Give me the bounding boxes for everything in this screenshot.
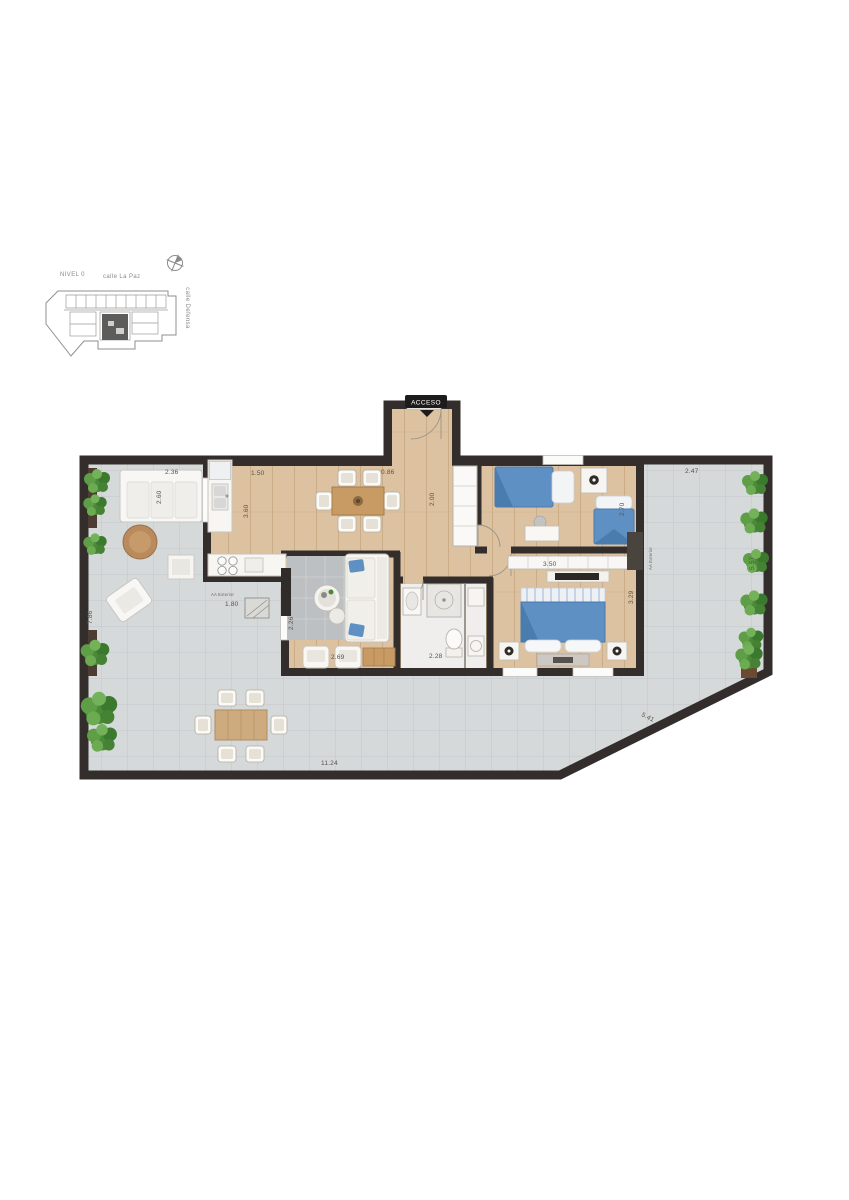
ac-unit-left xyxy=(245,598,269,618)
street-right-label: calle Defensa xyxy=(184,287,190,329)
master-window-left xyxy=(503,668,537,677)
oven xyxy=(245,558,263,572)
level-label: NIVEL 0 xyxy=(60,272,85,278)
site-highlight-unit xyxy=(102,314,128,340)
tv-console xyxy=(281,568,291,616)
site-map: NIVEL 0 calle La Paz calle Defensa xyxy=(40,245,195,365)
bath-sink xyxy=(403,588,421,615)
dim-living-width: 2.69 xyxy=(331,654,345,661)
outdoor-side-table xyxy=(168,555,194,579)
fridge xyxy=(210,462,231,480)
outdoor-round-table xyxy=(123,525,157,559)
dim-living-depth: 2.26 xyxy=(288,616,295,630)
dim-hall-depth: 2.00 xyxy=(429,492,436,506)
dim-master-depth: 3.29 xyxy=(628,590,635,604)
site-map-drawing: NIVEL 0 calle La Paz calle Defensa xyxy=(40,245,195,365)
master-window-right xyxy=(573,668,613,677)
ac-unit-right xyxy=(627,532,643,570)
hall-closet xyxy=(453,466,477,546)
compass-icon xyxy=(163,251,186,274)
dim-kitchen-top: 1.50 xyxy=(251,470,265,477)
entrance-label: ACCESO xyxy=(411,400,441,407)
dim-sofa-zone: 2.60 xyxy=(156,490,163,504)
master-tv xyxy=(547,571,609,582)
ac-label-right: AA Exterior xyxy=(648,546,653,570)
dim-terrace-bottom: 11.24 xyxy=(321,760,338,767)
bedroom2-bed-top xyxy=(495,467,574,507)
dim-hall-top: 0.86 xyxy=(381,469,395,476)
dim-terrace-left-height: 7.86 xyxy=(87,610,94,624)
dim-terrace-top-left: 2.36 xyxy=(165,469,179,476)
dim-bath-width: 2.28 xyxy=(429,653,443,660)
floor-plan-svg: ACCESO 2.36 1.50 0.86 2.47 5.57 7.86 2.6… xyxy=(75,392,775,792)
dim-master-width: 3.50 xyxy=(543,561,557,568)
dim-bedroom2-width: 2.70 xyxy=(619,502,626,516)
dim-ac-left-dist: 1.80 xyxy=(225,601,239,608)
sideboard xyxy=(363,648,395,666)
dim-terrace-right-top: 2.47 xyxy=(685,468,699,475)
floorplan-page: NIVEL 0 calle La Paz calle Defensa xyxy=(0,0,849,1200)
bedroom2-nightstand xyxy=(581,468,607,493)
bed-bench xyxy=(537,654,589,666)
master-bed xyxy=(521,588,605,652)
bedroom2-window xyxy=(543,456,583,465)
floor-plan: ACCESO 2.36 1.50 0.86 2.47 5.57 7.86 2.6… xyxy=(75,392,775,792)
dim-kitchen-depth: 3.60 xyxy=(243,504,250,518)
street-top-label: calle La Paz xyxy=(103,274,141,280)
sofa xyxy=(345,554,389,642)
wardrobe xyxy=(508,556,628,569)
ac-label-left: AA Exterior xyxy=(211,592,235,597)
shower xyxy=(427,584,461,617)
toilet xyxy=(446,629,462,657)
dim-terrace-right-height: 5.57 xyxy=(749,556,756,570)
